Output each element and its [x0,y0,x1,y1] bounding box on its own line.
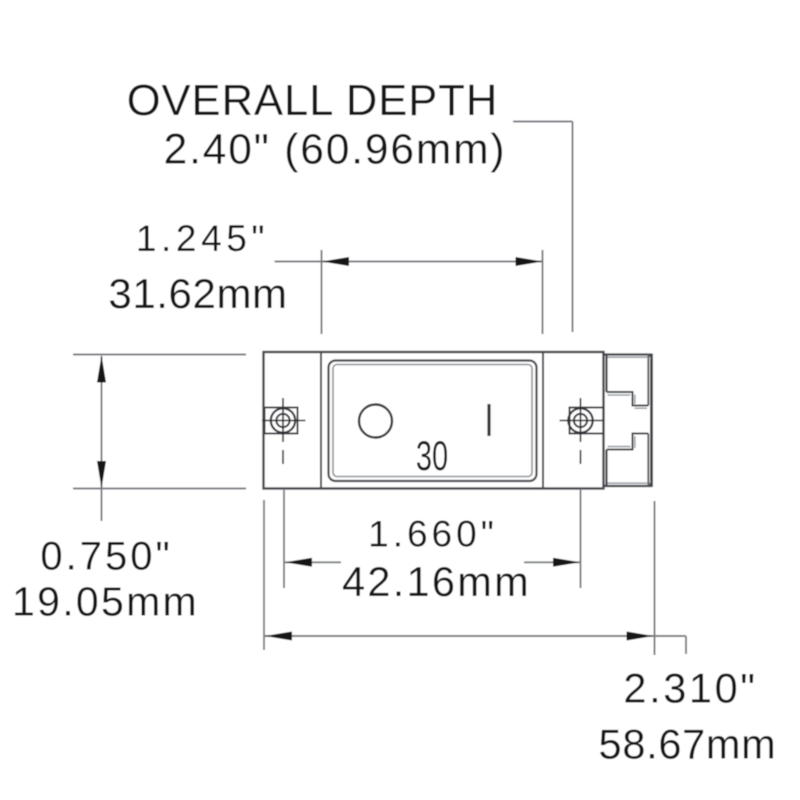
svg-text:1.660": 1.660" [368,514,498,555]
svg-text:19.05mm: 19.05mm [12,579,199,625]
svg-text:2.40" (60.96mm): 2.40" (60.96mm) [164,127,507,174]
svg-text:1.245": 1.245" [136,218,269,259]
svg-text:42.16mm: 42.16mm [342,558,531,605]
svg-text:30: 30 [416,433,448,479]
svg-text:31.62mm: 31.62mm [108,270,287,317]
svg-text:0.750": 0.750" [40,535,172,579]
svg-text:OVERALL DEPTH: OVERALL DEPTH [127,77,499,125]
svg-text:2.310": 2.310" [623,665,757,712]
svg-text:58.67mm: 58.67mm [599,721,777,768]
